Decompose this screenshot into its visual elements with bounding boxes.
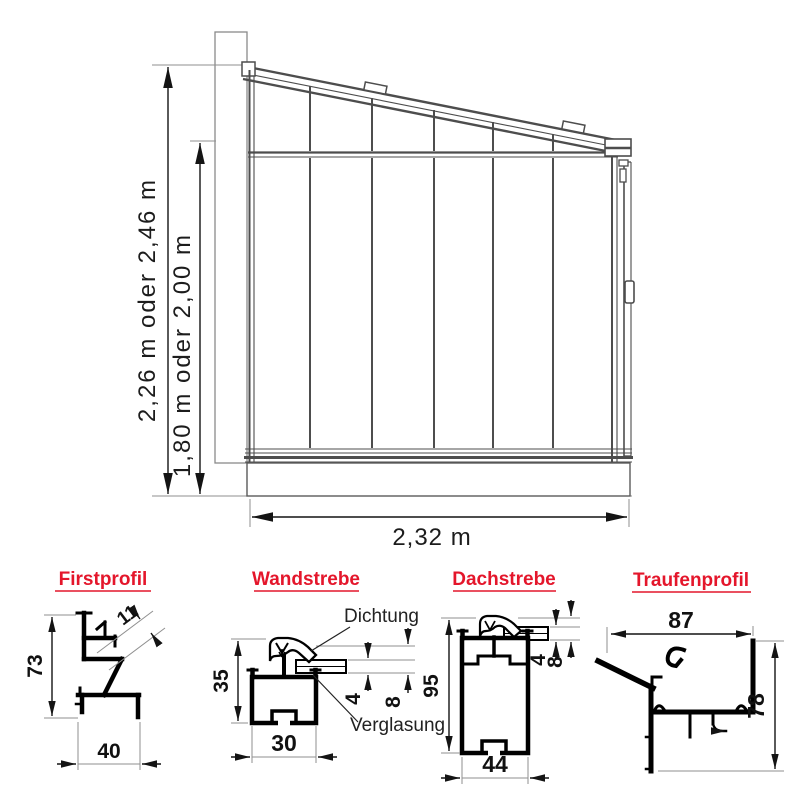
wandstrebe-glass-label: 4 <box>342 693 365 705</box>
traufenprofil-dim-height: 78 <box>658 641 784 771</box>
eaves-bracket <box>620 169 626 182</box>
profile-title-traufenprofil: Traufenprofil <box>633 570 749 591</box>
glazing-callout: Verglasung <box>350 715 445 736</box>
firstprofil-height-label: 73 <box>24 654 47 677</box>
wandstrebe-height-label: 35 <box>210 669 233 693</box>
firstprofil-offset-label: 11 <box>113 601 142 630</box>
clip-hook <box>668 648 684 666</box>
gasket-callout: Dichtung <box>344 606 419 627</box>
profile-dachstrebe: Dachstrebe 95 <box>420 569 580 784</box>
profile-title-dachstrebe: Dachstrebe <box>452 569 556 590</box>
firstprofil-dim-width: 40 <box>57 722 161 770</box>
traufenprofil-shape <box>598 641 753 771</box>
traufenprofil-width-label: 87 <box>668 607 694 633</box>
profile-title-firstprofil: Firstprofil <box>59 569 148 590</box>
dachstrebe-width-label: 44 <box>482 751 508 777</box>
eaves-hook <box>619 160 628 166</box>
front-edge <box>612 149 634 463</box>
gasket-clamp <box>270 638 316 662</box>
drainage-arrow <box>713 722 726 731</box>
wandstrebe-total-label: 8 <box>382 696 405 708</box>
traufenprofil-height-label: 78 <box>743 693 769 719</box>
outer-height-label: 2,26 m oder 2,46 m <box>134 178 161 422</box>
upper-mullions <box>310 86 553 151</box>
dachstrebe-height-label: 95 <box>420 674 443 698</box>
roof-beam <box>242 62 621 154</box>
inner-height-label: 1,80 m oder 2,00 m <box>169 233 196 477</box>
width-label: 2,32 m <box>392 524 471 551</box>
profile-wandstrebe: Wandstrebe 35 <box>210 569 445 763</box>
dachstrebe-total-label: 8 <box>544 656 567 668</box>
dachstrebe-dim-width: 44 <box>441 751 549 784</box>
profile-title-wandstrebe: Wandstrebe <box>252 569 360 590</box>
base-plinth <box>244 449 633 496</box>
wandstrebe-dim-width: 30 <box>231 726 337 763</box>
firstprofil-width-label: 40 <box>97 740 120 763</box>
traufenprofil-dim-width: 87 <box>607 607 753 653</box>
slot-opening <box>278 720 290 726</box>
wall-mullions <box>310 158 553 448</box>
roof-clamp <box>562 121 585 133</box>
door-handle <box>625 281 634 303</box>
house-wall-column <box>215 32 247 463</box>
greenhouse-technical-drawing: 2,26 m oder 2,46 m 1,80 m oder 2,00 m 2,… <box>0 0 800 800</box>
roof-clamp <box>364 82 387 94</box>
gutter-end-cap <box>605 139 631 156</box>
profile-firstprofil: Firstprofil 73 4 <box>24 569 165 770</box>
gasket-clamp <box>480 616 521 637</box>
firstprofil-dim-height: 73 <box>24 615 78 718</box>
dimension-inner-height: 1,80 m oder 2,00 m <box>169 143 200 494</box>
wandstrebe-shape <box>248 638 346 726</box>
drawing-canvas: 2,26 m oder 2,46 m 1,80 m oder 2,00 m 2,… <box>0 0 800 800</box>
dachstrebe-shape <box>458 616 548 757</box>
wandstrebe-width-label: 30 <box>271 730 297 756</box>
dimension-outer-height: 2,26 m oder 2,46 m <box>134 67 168 494</box>
main-side-view: 2,26 m oder 2,46 m 1,80 m oder 2,00 m 2,… <box>134 32 634 551</box>
dimension-width: 2,32 m <box>250 499 629 551</box>
profile-traufenprofil: Traufenprofil 87 78 <box>598 570 784 771</box>
